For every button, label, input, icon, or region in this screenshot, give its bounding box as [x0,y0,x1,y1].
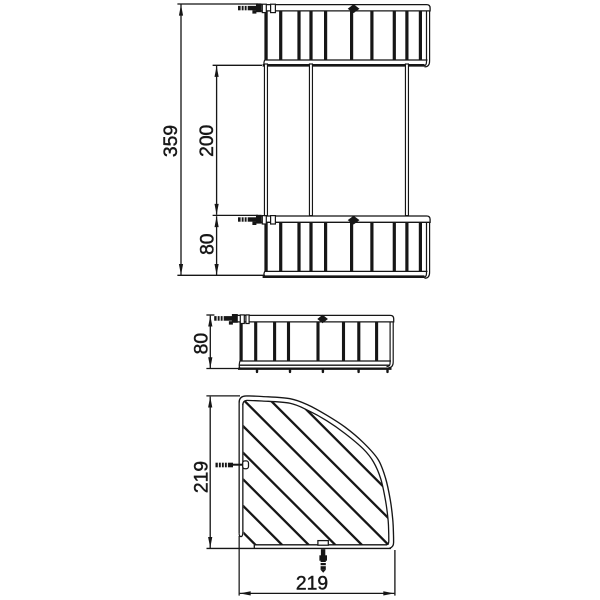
svg-text:80: 80 [192,333,213,354]
svg-text:359: 359 [161,125,182,157]
svg-text:219: 219 [191,461,212,493]
svg-text:200: 200 [197,125,218,157]
svg-text:80: 80 [198,233,219,254]
svg-text:219: 219 [296,574,328,595]
